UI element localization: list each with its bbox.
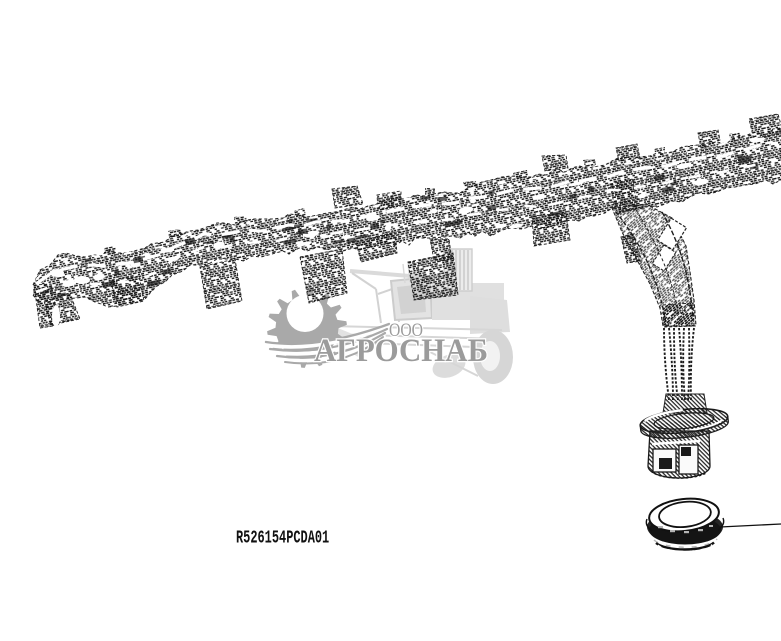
svg-text:АГРОСНАБ: АГРОСНАБ bbox=[314, 333, 488, 369]
svg-text:R526154PCDA01: R526154PCDA01 bbox=[236, 527, 329, 548]
